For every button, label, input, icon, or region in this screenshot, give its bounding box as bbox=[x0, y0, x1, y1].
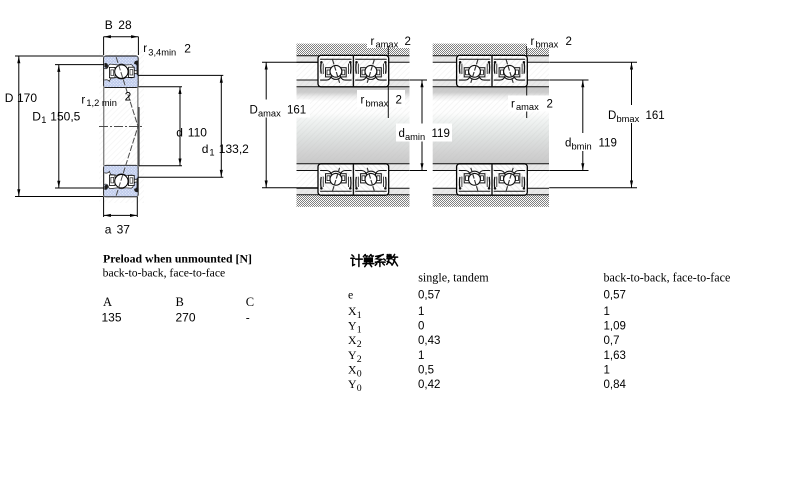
svg-text:r: r bbox=[531, 36, 535, 48]
svg-text:2: 2 bbox=[396, 95, 402, 107]
svg-text:bmax: bmax bbox=[617, 114, 640, 124]
svg-text:0,42: 0,42 bbox=[418, 379, 440, 391]
svg-text:single, tandem: single, tandem bbox=[418, 271, 489, 285]
svg-text:bmax: bmax bbox=[536, 40, 559, 50]
svg-text:133,2: 133,2 bbox=[219, 142, 249, 156]
svg-text:0,43: 0,43 bbox=[418, 335, 440, 347]
svg-text:119: 119 bbox=[599, 138, 617, 150]
svg-text:2: 2 bbox=[184, 41, 191, 55]
svg-text:2: 2 bbox=[405, 36, 411, 48]
svg-text:0,5: 0,5 bbox=[418, 364, 434, 376]
svg-text:Y: Y bbox=[348, 377, 357, 391]
svg-text:C: C bbox=[246, 295, 254, 309]
svg-text:2: 2 bbox=[547, 99, 553, 111]
svg-text:Preload when unmounted [N]: Preload when unmounted [N] bbox=[103, 252, 252, 266]
svg-text:1: 1 bbox=[41, 115, 46, 125]
svg-text:d: d bbox=[202, 142, 209, 156]
svg-text:2: 2 bbox=[125, 89, 132, 103]
svg-text:bmax: bmax bbox=[366, 99, 389, 109]
svg-text:r: r bbox=[361, 95, 365, 107]
svg-text:0: 0 bbox=[357, 383, 362, 394]
svg-text:37: 37 bbox=[117, 223, 131, 237]
svg-text:0,84: 0,84 bbox=[604, 379, 627, 391]
svg-text:D: D bbox=[608, 110, 616, 122]
svg-text:135: 135 bbox=[102, 311, 122, 325]
svg-text:2: 2 bbox=[566, 36, 572, 48]
svg-text:amax: amax bbox=[258, 109, 281, 119]
svg-text:1: 1 bbox=[357, 310, 362, 321]
svg-text:r: r bbox=[81, 94, 85, 106]
svg-text:2: 2 bbox=[357, 354, 362, 365]
svg-text:d: d bbox=[399, 128, 405, 140]
svg-text:150,5: 150,5 bbox=[50, 109, 80, 123]
svg-text:-: - bbox=[246, 311, 250, 325]
svg-text:d: d bbox=[565, 138, 571, 150]
svg-text:amax: amax bbox=[376, 40, 399, 50]
svg-text:161: 161 bbox=[287, 105, 306, 117]
svg-text:270: 270 bbox=[176, 311, 196, 325]
svg-text:119: 119 bbox=[432, 128, 450, 140]
svg-text:2: 2 bbox=[357, 339, 362, 350]
svg-text:X: X bbox=[348, 362, 357, 376]
svg-text:e: e bbox=[348, 288, 353, 302]
svg-text:r: r bbox=[143, 43, 147, 55]
svg-text:1: 1 bbox=[418, 350, 424, 362]
svg-text:B: B bbox=[176, 295, 184, 309]
svg-text:0,57: 0,57 bbox=[418, 290, 440, 302]
svg-text:amax: amax bbox=[516, 102, 539, 112]
svg-text:Y: Y bbox=[348, 348, 357, 362]
svg-text:170: 170 bbox=[17, 91, 37, 105]
svg-text:1,09: 1,09 bbox=[604, 321, 626, 333]
svg-text:Y: Y bbox=[348, 319, 357, 333]
svg-text:D: D bbox=[250, 105, 258, 117]
svg-text:A: A bbox=[103, 295, 112, 309]
svg-text:0: 0 bbox=[357, 368, 362, 379]
svg-text:3,4min: 3,4min bbox=[148, 48, 176, 58]
svg-text:0,57: 0,57 bbox=[604, 290, 626, 302]
svg-text:D: D bbox=[5, 91, 14, 105]
svg-text:1,2 min: 1,2 min bbox=[86, 98, 117, 108]
svg-text:1,63: 1,63 bbox=[604, 350, 626, 362]
svg-text:0: 0 bbox=[418, 321, 424, 333]
svg-text:r: r bbox=[371, 36, 375, 48]
svg-text:amin: amin bbox=[405, 132, 425, 142]
svg-text:28: 28 bbox=[118, 18, 132, 32]
svg-text:110: 110 bbox=[188, 126, 207, 140]
svg-text:back-to-back, face-to-face: back-to-back, face-to-face bbox=[604, 271, 731, 285]
svg-text:1: 1 bbox=[209, 148, 214, 158]
svg-text:1: 1 bbox=[418, 306, 424, 318]
svg-text:0,7: 0,7 bbox=[604, 335, 620, 347]
svg-text:back-to-back, face-to-face: back-to-back, face-to-face bbox=[103, 266, 226, 279]
svg-text:1: 1 bbox=[357, 325, 362, 336]
svg-text:X: X bbox=[348, 304, 357, 318]
svg-text:X: X bbox=[348, 333, 357, 347]
svg-text:1: 1 bbox=[604, 364, 610, 376]
svg-text:d: d bbox=[176, 126, 183, 140]
svg-text:bmin: bmin bbox=[572, 142, 592, 152]
svg-text:1: 1 bbox=[604, 306, 610, 318]
svg-text:161: 161 bbox=[646, 110, 665, 122]
svg-text:a: a bbox=[105, 223, 112, 237]
svg-text:r: r bbox=[511, 99, 515, 111]
svg-text:D: D bbox=[32, 109, 41, 123]
svg-text:B: B bbox=[105, 18, 113, 32]
